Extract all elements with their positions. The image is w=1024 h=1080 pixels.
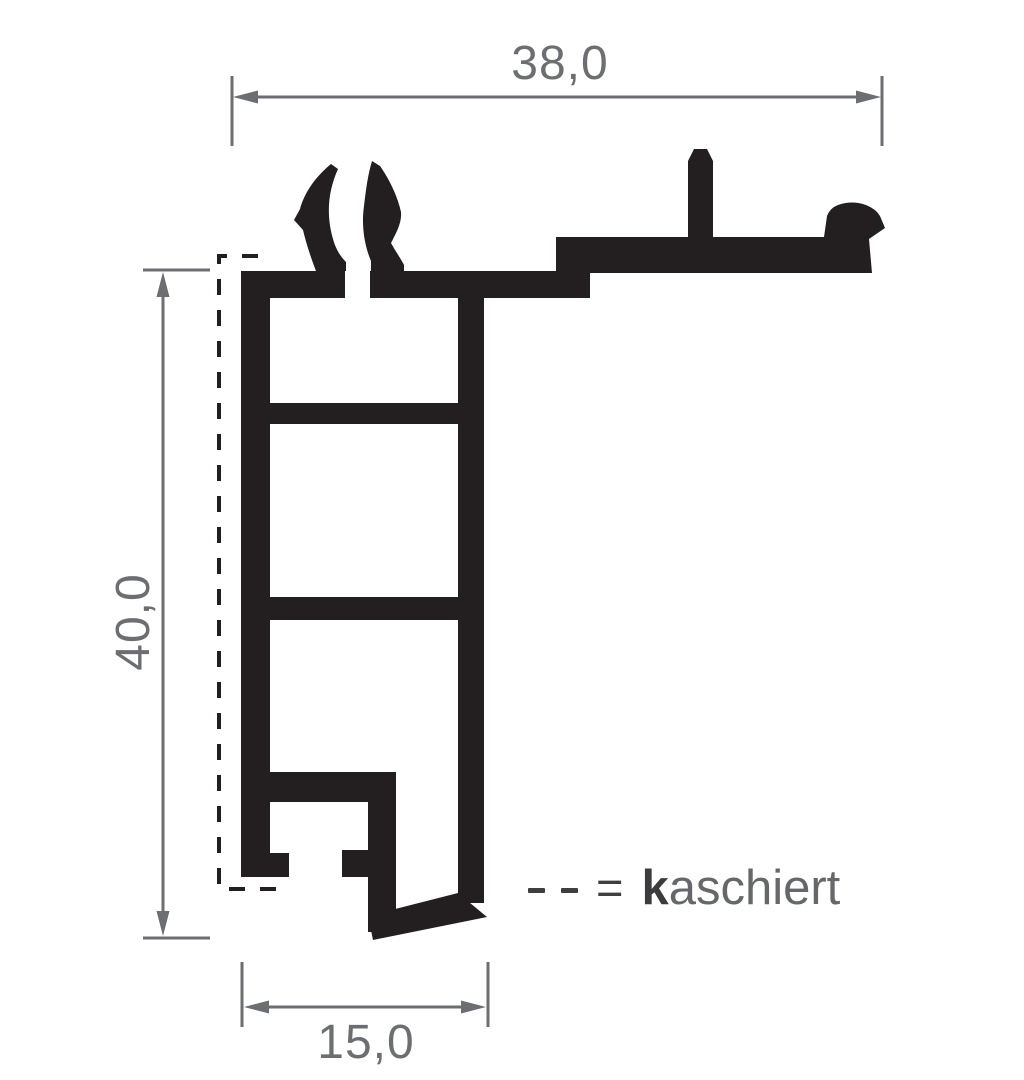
profile-foot-step xyxy=(270,853,289,877)
profile-right-wall xyxy=(458,271,484,903)
profile-top-arm-hook xyxy=(556,203,885,274)
dimension-label-top-width: 38,0 xyxy=(460,38,660,90)
legend-equals-sign: = xyxy=(594,864,625,917)
legend-term: kaschiert xyxy=(641,862,840,918)
profile-clip-prong-right xyxy=(363,161,404,271)
arrowhead-left xyxy=(244,1001,269,1014)
legend-dash-icon xyxy=(528,888,545,893)
arrowhead-right xyxy=(856,91,881,104)
dimension-label-left-height: 40,0 xyxy=(108,573,160,670)
profile-web-upper xyxy=(270,403,458,424)
legend-dash-icon xyxy=(561,888,578,893)
profile-foot-stub xyxy=(342,850,370,877)
profile-clip-prong-left xyxy=(294,164,346,271)
kaschiert-legend: = kaschiert xyxy=(528,862,840,918)
profile-drawing-svg xyxy=(0,0,1024,1080)
profile-foot-bar xyxy=(270,772,396,802)
profile-web-lower xyxy=(270,597,458,620)
legend-term-bold-prefix: k xyxy=(641,861,668,915)
arrowhead-bottom xyxy=(157,911,170,936)
arrowhead-top xyxy=(157,272,170,297)
dimension-label-bottom-width: 15,0 xyxy=(266,1017,466,1069)
legend-term-remainder: aschiert xyxy=(669,861,841,915)
arrowhead-left xyxy=(233,91,258,104)
profile-pin xyxy=(688,149,713,240)
profile-shape xyxy=(241,149,885,940)
arrowhead-right xyxy=(461,1001,486,1014)
technical-drawing-page: 38,0 40,0 15,0 = kaschiert xyxy=(0,0,1024,1080)
profile-top-bar-left xyxy=(241,271,345,298)
profile-left-wall xyxy=(241,271,270,877)
